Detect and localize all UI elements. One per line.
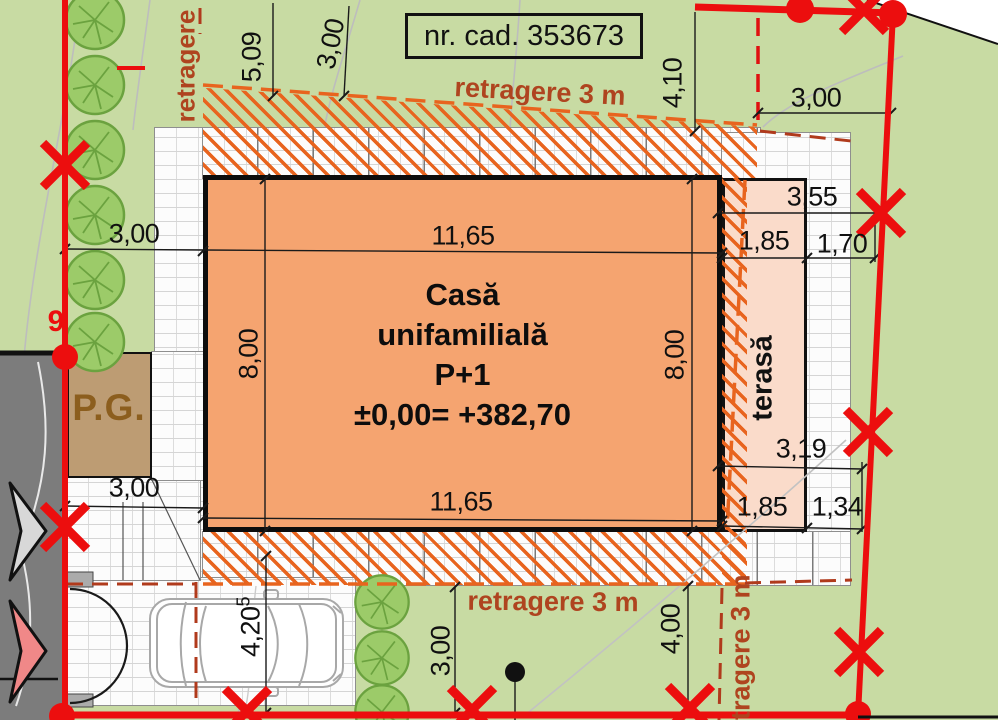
dim-4-20-sup: 5 [234, 597, 254, 607]
dim-3-19: 3,19 [776, 434, 827, 465]
house-name-line2: unifamilială [377, 315, 548, 355]
setback-label-right: retragere 3 m [726, 574, 757, 720]
dim-4-20-main: 4,20 [236, 606, 266, 657]
dim-4-20-5: 4,205 [234, 597, 267, 657]
dim-1-85-upper: 1,85 [739, 226, 790, 257]
tree-row-left [66, 0, 124, 371]
dim-8-00-right: 8,00 [660, 330, 691, 381]
site-plan: nr. cad. 353673 Casă unifamilială P+1 ±0… [0, 0, 998, 720]
setback-label-bottom: retragere 3 m [467, 586, 638, 618]
dim-3-00-bottom: 3,00 [426, 626, 457, 677]
survey-point-black [505, 662, 525, 682]
dim-3-55: 3,55 [787, 182, 838, 213]
dim-4-00: 4,00 [656, 604, 687, 655]
dim-4-10: 4,10 [658, 58, 689, 109]
dim-3-00-left-lower: 3,00 [109, 473, 160, 504]
parcel-point-label: 9 [48, 305, 65, 339]
house-level: ±0,00= +382,70 [354, 395, 571, 435]
dim-3-00-tr: 3,00 [791, 83, 842, 114]
dim-1-34: 1,34 [812, 492, 863, 523]
house-name-line1: Casă [425, 275, 499, 315]
gate-arcs [70, 589, 127, 703]
dim-8-00-left: 8,00 [234, 329, 265, 380]
garage-label: P.G. [72, 387, 145, 429]
dim-3-00-left-upper: 3,00 [109, 219, 160, 250]
road-arrow-gray [10, 483, 46, 580]
terrace-label: terasă [747, 335, 780, 420]
dim-1-85-lower: 1,85 [737, 492, 788, 523]
dim-11-65-bottom: 11,65 [429, 487, 492, 518]
house-floors: P+1 [434, 355, 490, 395]
setback-label-left: retragere [171, 10, 202, 123]
dim-11-65-top: 11,65 [431, 221, 494, 252]
dim-5-09: 5,09 [237, 32, 268, 83]
cadastral-label: nr. cad. 353673 [424, 20, 624, 53]
tree-row-bottom [355, 575, 408, 720]
dim-1-70: 1,70 [817, 229, 868, 260]
road-arrow-red [10, 601, 46, 702]
cadastral-box: nr. cad. 353673 [405, 13, 643, 59]
